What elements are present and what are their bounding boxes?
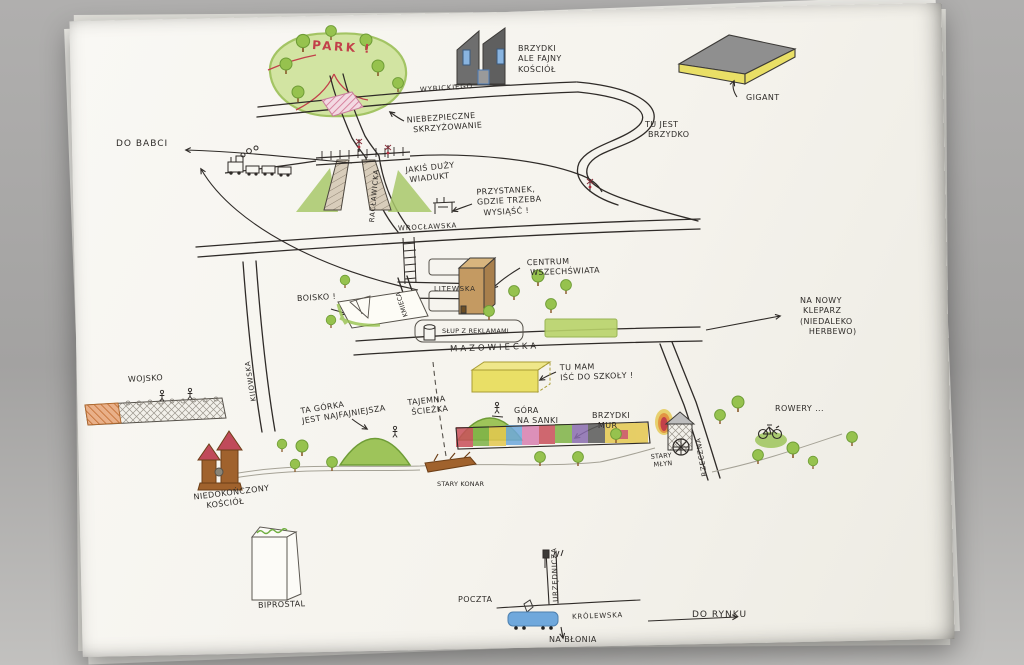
center-of-universe-label: CENTRUM WSZECHŚWIATA bbox=[527, 256, 600, 279]
road-rzeczna bbox=[672, 342, 720, 478]
roads bbox=[196, 74, 720, 608]
to-blonia-label: NA BŁONIA bbox=[549, 635, 597, 645]
do-babci-arrows bbox=[186, 150, 418, 290]
smoke bbox=[247, 149, 252, 154]
photo-of-hand-drawn-map: PARK ! WYBICKIEGO BRZYDKI ALE FAJNY KOŚC… bbox=[0, 0, 1024, 665]
skrzyzowanie-arrow bbox=[390, 112, 404, 121]
kleparz-arrow bbox=[706, 316, 780, 330]
ugly-nice-church-label: BRZYDKI ALE FAJNY KOŚCIÓŁ bbox=[518, 44, 562, 75]
its-ugly-here-label: TU JEST BRZYDKO bbox=[645, 120, 689, 141]
stairs-drawing bbox=[403, 237, 416, 284]
gigant-label: GIGANT bbox=[746, 93, 780, 103]
street-label-urzednicza: URZĘDNICZA bbox=[550, 547, 561, 602]
road-krolewska bbox=[497, 600, 640, 608]
to-grandma-label: DO BABCI bbox=[116, 139, 168, 151]
school-here-label: TU MAM IŚĆ DO SZKOŁY ! bbox=[560, 361, 634, 384]
tram-stop-label: PRZYSTANEK, GDZIE TRZEBA WYSIĄŚĆ ! bbox=[476, 184, 542, 219]
school-building-drawing bbox=[472, 362, 550, 392]
old-log-label: STARY KONAR bbox=[437, 480, 484, 488]
bicycle-drawing bbox=[755, 425, 787, 448]
old-log-drawing bbox=[425, 452, 476, 472]
old-mill-label: STARY MŁYN bbox=[650, 451, 673, 470]
unfinished-church-drawing bbox=[198, 431, 300, 490]
military-label: WOJSKO bbox=[128, 373, 164, 385]
secret-path-label: TAJEMNA ŚCIEŻKA bbox=[407, 394, 449, 419]
military-wall-drawing bbox=[85, 388, 226, 425]
green-lawn-strip bbox=[545, 319, 617, 337]
advertising-column-drawing bbox=[424, 325, 435, 340]
sledding-hill-label: GÓRA NA SANKI bbox=[514, 406, 558, 427]
szkola-arrow bbox=[540, 372, 556, 380]
biprostal-label: BIPROSTAL bbox=[258, 599, 306, 611]
bikes-label: ROWERY ... bbox=[775, 404, 824, 414]
bus-stop-drawing bbox=[433, 197, 455, 214]
gorka-arrow bbox=[352, 419, 367, 429]
street-label-litewska: LITEWSKA bbox=[434, 285, 476, 294]
centrum-arrow bbox=[493, 268, 520, 288]
road-kijowska bbox=[243, 262, 262, 432]
to-nowy-kleparz-label: NA NOWY KLEPARZ (NIEDALEKO HERBEWO) bbox=[800, 296, 857, 338]
street-label-krolewska: KRÓLEWSKA bbox=[572, 611, 623, 622]
playing-field-label: BOISKO ! bbox=[297, 292, 337, 304]
map-drawing-layer bbox=[0, 0, 1024, 665]
road-right-curvy bbox=[577, 92, 642, 205]
modern-church-drawing bbox=[454, 28, 510, 85]
post-office-label: POCZTA bbox=[458, 595, 492, 605]
advertising-column-label: SŁUP Z REKLAMAMI bbox=[442, 327, 509, 335]
smoke bbox=[254, 146, 258, 150]
road-kijowska bbox=[256, 261, 275, 431]
to-main-square-label: DO RYNKU bbox=[692, 610, 747, 622]
przystanek-arrow bbox=[453, 204, 472, 211]
road-mazowiecka bbox=[356, 327, 700, 341]
road-right-curvy bbox=[577, 82, 698, 221]
road-wroclawska bbox=[198, 229, 700, 257]
playing-field-drawing bbox=[326, 275, 428, 328]
train-drawing bbox=[228, 146, 291, 176]
biprostal-tower-drawing bbox=[252, 527, 301, 600]
ugly-wall-label: BRZYDKI MUR bbox=[592, 411, 630, 432]
gigant-store-drawing bbox=[679, 35, 795, 84]
gigant-arrow bbox=[733, 81, 737, 97]
railway-crossing-signal-icons bbox=[356, 139, 593, 192]
